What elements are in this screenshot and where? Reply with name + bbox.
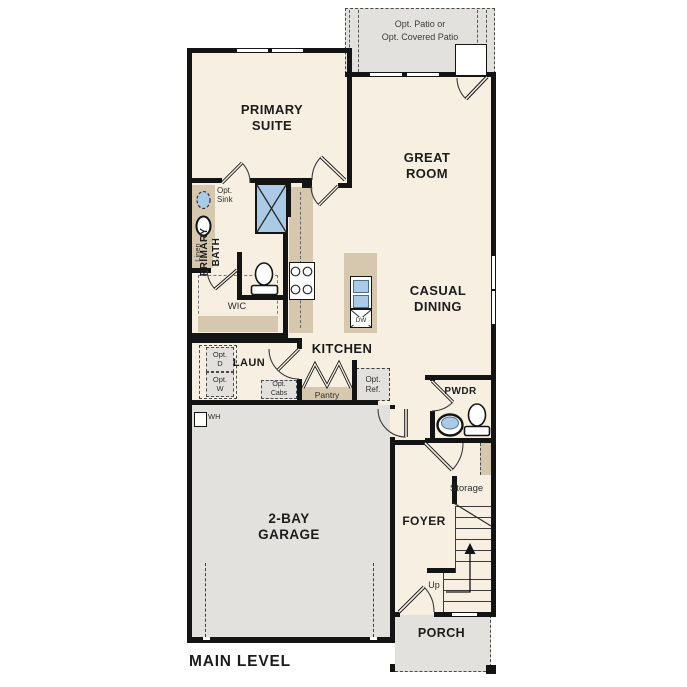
patio-label: Opt. Patio or Opt. Covered Patio [345, 18, 495, 43]
optional-sink-icon [197, 192, 210, 209]
porch-label: PORCH [409, 626, 474, 641]
laundry-label: LAUN [228, 357, 270, 370]
toilet-icon [252, 263, 278, 295]
up-label: Up [424, 580, 444, 591]
shower-icon [257, 185, 286, 232]
pwdr-sink-icon [438, 415, 463, 436]
storage-label: Storage [444, 483, 489, 494]
stair-cut-line [452, 502, 491, 526]
up-arrow-icon [446, 543, 476, 592]
pantry-label: Pantry [302, 390, 352, 400]
garage-label: 2-BAY GARAGE [239, 511, 339, 544]
water-heater-label: WH [208, 413, 230, 422]
toilet-icon [465, 404, 490, 436]
kitchen-label: KITCHEN [297, 341, 387, 357]
foyer-label: FOYER [399, 514, 449, 529]
bifold-door-icon [303, 363, 351, 388]
floor-plan: Opt. D Opt. W Opt. Cabs Opt. Ref. [0, 0, 687, 687]
wic-label: WIC [212, 301, 262, 312]
pwdr-label: PWDR [438, 386, 483, 398]
range-burners-icon [291, 267, 312, 294]
linen-label: Linen [194, 239, 203, 266]
great-room-label: GREAT ROOM [382, 150, 472, 182]
dishwasher-label: DW [351, 317, 371, 325]
plan-title: MAIN LEVEL [189, 653, 309, 672]
casual-dining-label: CASUAL DINING [393, 283, 483, 315]
opt-sink-label: Opt. Sink [214, 186, 244, 205]
primary-suite-label: PRIMARY SUITE [222, 102, 322, 134]
